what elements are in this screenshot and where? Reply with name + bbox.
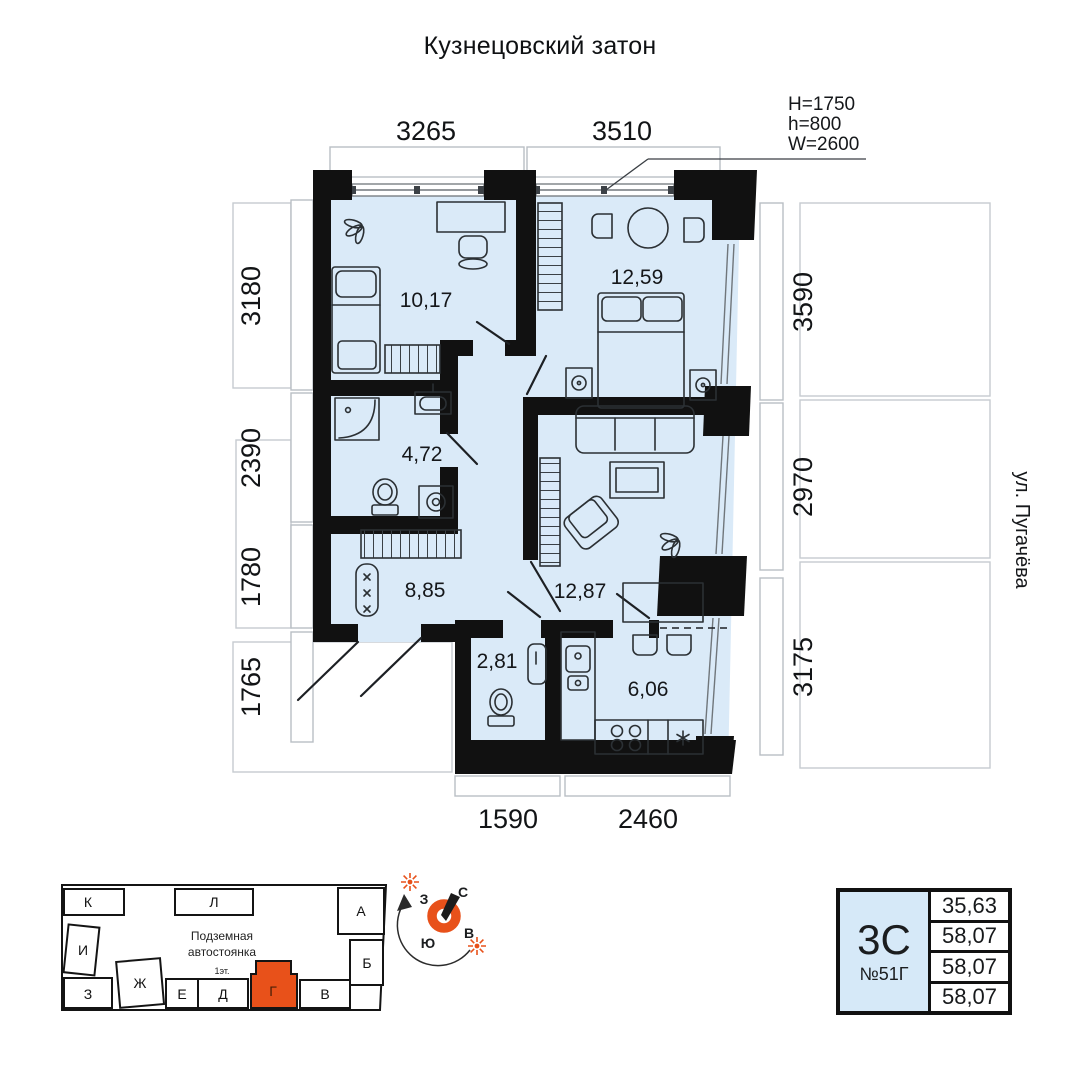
room-label-bedroom2: 12,59 xyxy=(611,266,664,289)
dim-bottom-1: 1590 xyxy=(478,804,538,834)
sunset-icon xyxy=(401,873,419,891)
compass-east: В xyxy=(464,925,474,941)
site-block-e-label: Е xyxy=(177,986,186,1002)
room-label-wc: 2,81 xyxy=(477,650,518,673)
dim-left-3: 1780 xyxy=(236,547,266,607)
site-block-g-label: Г xyxy=(269,983,277,999)
dim-bottom-2: 2460 xyxy=(618,804,678,834)
room-label-bathroom: 4,72 xyxy=(402,443,443,466)
apartment-number: №51Г xyxy=(859,964,908,985)
apartment-type: 3С xyxy=(857,919,911,961)
floorplan-page: Кузнецовский затон xyxy=(0,0,1080,1080)
dim-left-1: 3180 xyxy=(236,266,266,326)
room-label-hallway: 8,85 xyxy=(405,579,446,602)
dim-left-2: 2390 xyxy=(236,428,266,488)
radiator xyxy=(385,345,440,373)
dim-top-1: 3265 xyxy=(396,116,456,146)
room-label-kitchen: 6,06 xyxy=(628,678,669,701)
compass-arrowhead xyxy=(397,894,412,911)
area-value: 58,07 xyxy=(931,923,1008,954)
site-block-d-label: Д xyxy=(218,986,228,1002)
site-block-k[interactable] xyxy=(64,889,124,915)
site-block-l-label: Л xyxy=(209,894,218,910)
site-block-b-label: Б xyxy=(362,955,371,971)
apartment-card[interactable]: 3С №51Г 35,63 58,07 58,07 58,07 xyxy=(836,888,1012,1015)
wardrobe-bedroom2 xyxy=(538,203,562,310)
parking-label-2: автостоянка xyxy=(188,945,256,959)
room-label-bedroom1: 10,17 xyxy=(400,289,453,312)
compass-west: З xyxy=(420,891,429,907)
parking-floor-label: 1эт. xyxy=(214,966,229,976)
area-value: 58,07 xyxy=(931,984,1008,1012)
wardrobe-living xyxy=(540,458,560,566)
wardrobe-hall xyxy=(361,530,461,558)
compass-north: С xyxy=(458,884,468,900)
site-block-z-label: З xyxy=(84,986,92,1002)
area-value: 58,07 xyxy=(931,953,1008,984)
site-block-zh-label: Ж xyxy=(134,975,147,991)
area-value: 35,63 xyxy=(931,892,1008,923)
apartment-card-values: 35,63 58,07 58,07 58,07 xyxy=(931,892,1008,1011)
dim-right-1: 3590 xyxy=(788,272,818,332)
window-width-label: W=2600 xyxy=(788,134,859,155)
compass: С З Ю В xyxy=(397,873,486,966)
room-label-living: 12,87 xyxy=(554,580,607,603)
dim-left-4: 1765 xyxy=(236,657,266,717)
dim-right-2: 2970 xyxy=(788,457,818,517)
dim-right-3: 3175 xyxy=(788,637,818,697)
street-label: ул. Пугачёва xyxy=(1011,471,1033,589)
site-plan: К Л А И Б З Ж Е Д Г В Подземная автостоя… xyxy=(62,885,386,1010)
site-block-i-label: И xyxy=(78,942,88,958)
compass-south: Ю xyxy=(421,935,435,951)
site-block-k-label: К xyxy=(84,894,93,910)
site-block-v-label: В xyxy=(320,986,329,1002)
apartment-card-type-cell: 3С №51Г xyxy=(840,892,931,1011)
window-sill-label: h=800 xyxy=(788,114,841,135)
dim-top-2: 3510 xyxy=(592,116,652,146)
window-height-label: H=1750 xyxy=(788,94,855,115)
parking-label-1: Подземная xyxy=(191,929,253,943)
site-block-a-label: А xyxy=(356,903,366,919)
